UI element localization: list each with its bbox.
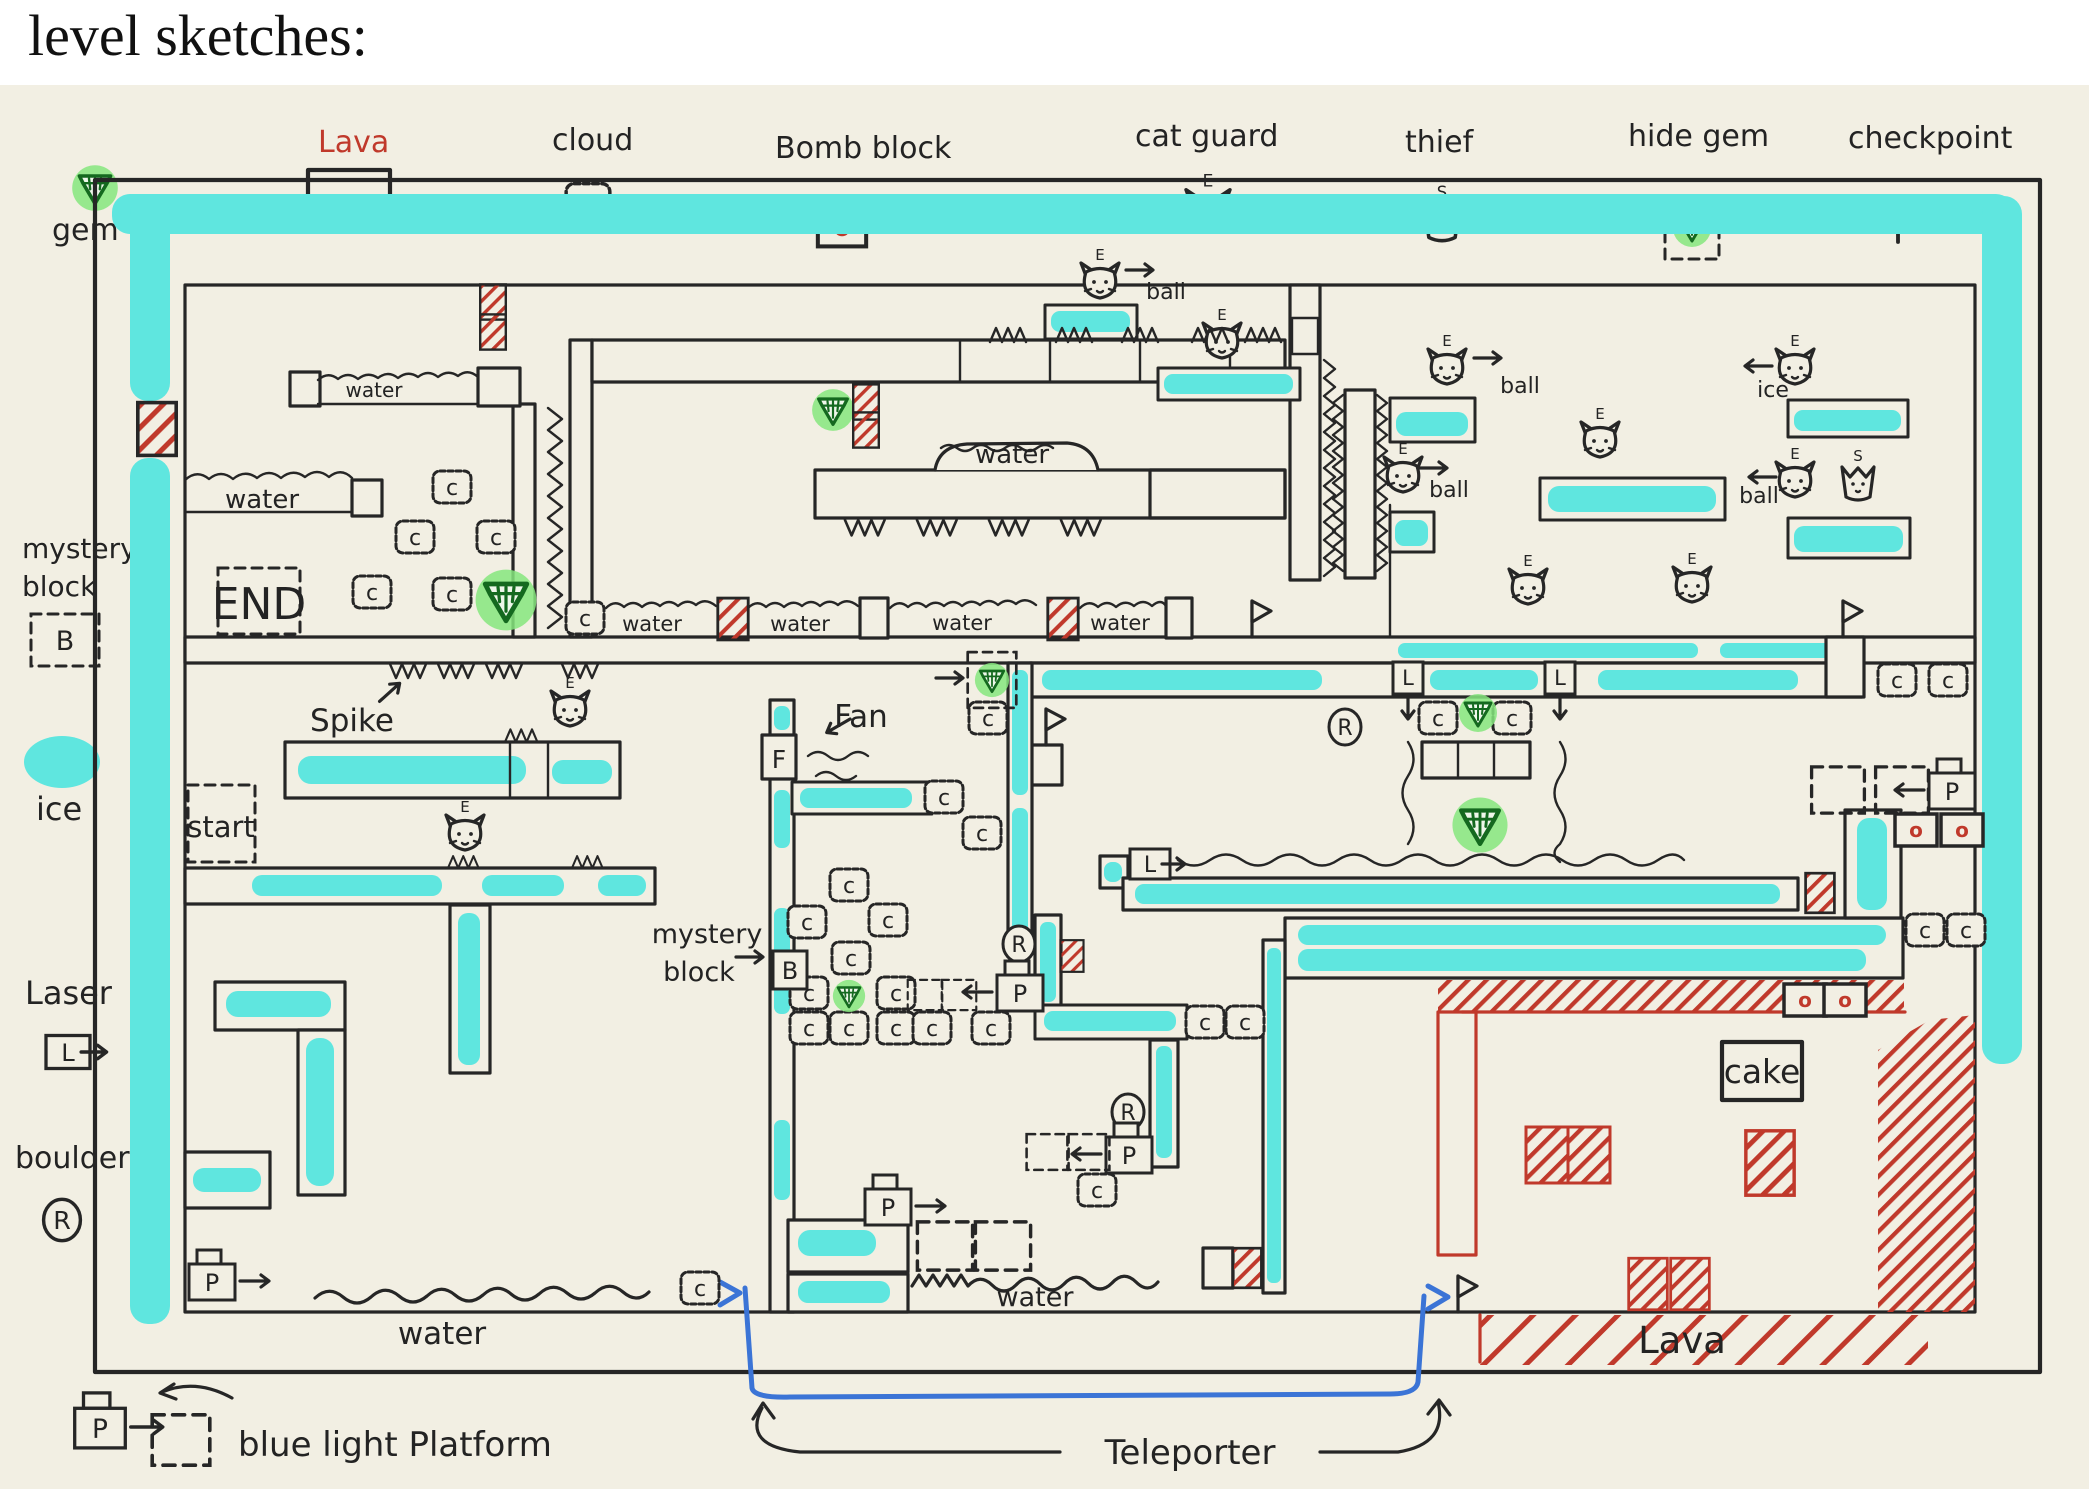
lava-icon [138, 403, 176, 456]
lava-icon [1048, 598, 1078, 640]
map-label: block [663, 957, 735, 988]
lava-icon [1060, 940, 1083, 972]
cloud-icon [788, 906, 826, 938]
cloud-icon [433, 471, 471, 503]
boulder-icon [44, 1199, 81, 1240]
cloud-icon [1493, 702, 1531, 734]
cloud-icon [913, 1012, 951, 1044]
cloud-icon [1947, 914, 1985, 946]
lava-red-icon [1671, 1258, 1710, 1310]
legend-label: boulder [15, 1141, 130, 1176]
bomb-icon [1895, 814, 1937, 846]
gem-icon [1459, 694, 1497, 732]
gem-icon [812, 389, 854, 431]
bomb-icon [1941, 814, 1983, 846]
cloud-icon [877, 1012, 915, 1044]
legend-label: gem [52, 213, 119, 248]
legend-label: blue light Platform [238, 1425, 552, 1465]
map-label: water [770, 612, 830, 636]
legend-label: thief [1405, 125, 1475, 160]
cloud-icon [477, 521, 515, 553]
lava-icon [480, 314, 506, 349]
map-label: ball [1429, 478, 1469, 503]
gem-icon [476, 570, 537, 631]
cloud-icon [877, 977, 915, 1009]
legend-label: Laser [25, 974, 113, 1012]
teleporter-label: Teleporter [1104, 1433, 1276, 1473]
lava-icon [718, 598, 748, 640]
map-label: water [622, 612, 682, 636]
cloud-icon [1929, 664, 1967, 696]
ice-border-top [112, 194, 2014, 234]
cloud-icon [925, 781, 963, 813]
lava-icon [1233, 1248, 1262, 1288]
lava-red-icon [1629, 1258, 1668, 1310]
map-label: water [932, 611, 992, 635]
level-sketch-page: c o E S [0, 0, 2089, 1489]
ice-border-left [130, 458, 170, 1324]
legend-label: cat guard [1135, 119, 1278, 154]
cloud-icon [830, 869, 868, 901]
map-label: ice [1757, 378, 1789, 403]
map-label: ball [1146, 280, 1186, 305]
cloud-icon [972, 1012, 1010, 1044]
cloud-icon [681, 1272, 719, 1304]
cloud-icon [1226, 1006, 1264, 1038]
legend-label: cloud [552, 123, 633, 158]
cloud-icon [433, 578, 471, 610]
boulder-icon [1329, 709, 1361, 745]
legend-label: hide gem [1628, 119, 1769, 154]
page-title: level sketches: [28, 3, 368, 68]
legend-label: Lava [318, 125, 389, 160]
cloud-icon [869, 904, 907, 936]
map-label: Lava [1638, 1319, 1726, 1362]
legend-label: block [22, 570, 97, 603]
map-label: water [346, 378, 404, 402]
ice-border-right [1982, 196, 2022, 1064]
map-label: Spike [310, 703, 394, 739]
cloud-icon [353, 576, 391, 608]
legend-label: ice [36, 790, 82, 828]
lava-red-icon [1746, 1131, 1794, 1195]
ice-swatch [24, 736, 100, 788]
boulder-icon [1003, 926, 1035, 962]
map-label: water [997, 1282, 1075, 1313]
cloud-icon [1078, 1174, 1116, 1206]
cloud-icon [790, 1012, 828, 1044]
map-label: water [975, 440, 1049, 470]
legend-label: mystery [22, 532, 137, 565]
cloud-icon [832, 942, 870, 974]
lava-red-icon [1568, 1127, 1610, 1183]
gem-icon [1452, 797, 1507, 852]
map-label: mystery [652, 919, 763, 950]
map-label: END [212, 579, 307, 630]
map-label: water [1090, 611, 1150, 635]
cloud-icon [830, 1012, 868, 1044]
cloud-icon [1906, 914, 1944, 946]
lava-icon [853, 412, 879, 447]
bomb-icon [1824, 984, 1866, 1016]
legend-label: Bomb block [775, 131, 952, 166]
cloud-icon [1419, 702, 1457, 734]
ice-border-left [130, 196, 170, 401]
lava-red-icon [1526, 1127, 1568, 1183]
lava-icon [1806, 873, 1835, 913]
map-label: ball [1739, 484, 1779, 509]
level-sketch-canvas: c o E S [0, 0, 2089, 1489]
cloud-icon [1186, 1006, 1224, 1038]
cloud-icon [396, 521, 434, 553]
map-label: start [187, 810, 255, 844]
map-label: water [398, 1316, 487, 1352]
cloud-icon [963, 817, 1001, 849]
map-label: cake [1724, 1052, 1801, 1091]
map-label: ball [1500, 374, 1540, 399]
bomb-icon [1784, 984, 1826, 1016]
fan-letter: F [772, 745, 786, 774]
map-label: Fan [834, 699, 888, 735]
gem-icon [833, 980, 865, 1012]
mysteryB-icon [773, 951, 807, 989]
legend-label: checkpoint [1848, 121, 2013, 156]
cloud-icon [1878, 664, 1916, 696]
lava-hatch-right [1878, 1015, 1975, 1312]
cloud-icon [566, 602, 604, 634]
map-label: water [225, 485, 299, 515]
